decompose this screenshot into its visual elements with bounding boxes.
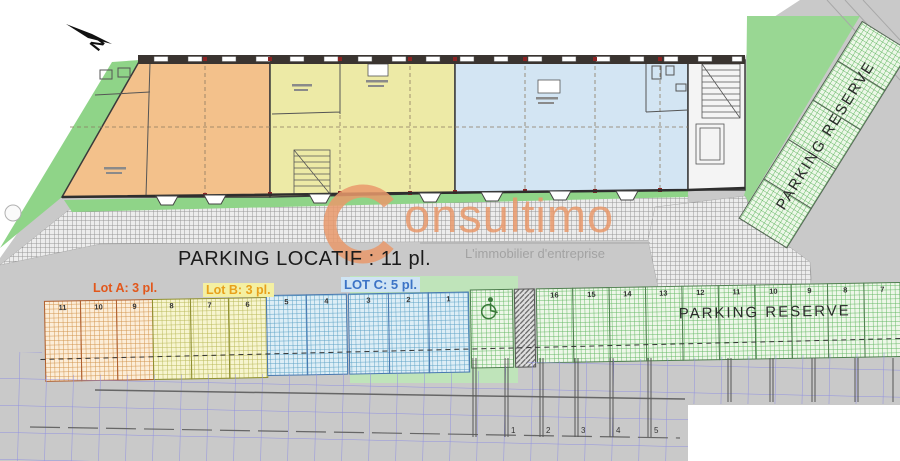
road-number: 2 — [546, 426, 551, 435]
space-number: 2 — [406, 295, 410, 304]
lot-c-spaces: 5 4 3 2 1 — [266, 292, 469, 376]
parking-space — [80, 300, 117, 381]
lot-b-label: Lot B: 3 pl. — [203, 283, 274, 297]
road-number: 5 — [654, 426, 659, 435]
road-number: 1 — [511, 426, 516, 435]
space-number: 9 — [132, 302, 136, 311]
space-number: 8 — [843, 285, 847, 294]
space-number: 14 — [623, 289, 632, 298]
space-number: 8 — [169, 301, 173, 310]
shrub-symbol — [5, 205, 21, 221]
parking-space — [228, 298, 267, 379]
parking-space — [306, 294, 347, 375]
space-number: 10 — [94, 302, 102, 311]
lot-c-label: LOT C: 5 pl. — [341, 277, 420, 292]
parking-space — [116, 300, 153, 381]
space-number: 11 — [59, 303, 67, 312]
space-number: 12 — [696, 288, 704, 297]
space-number: 7 — [207, 301, 211, 310]
lot-a-spaces: 11 10 9 — [44, 300, 153, 382]
parking-space — [190, 298, 229, 379]
parking-space — [152, 299, 191, 380]
building-stairwell-block — [688, 60, 745, 190]
hatched-walkway — [514, 289, 535, 367]
building — [62, 55, 745, 205]
space-number: 7 — [880, 285, 884, 294]
parking-space — [348, 293, 389, 374]
parking-space — [428, 292, 469, 373]
space-number: 1 — [446, 294, 450, 303]
watermark-tagline: L'immobilier d'entreprise — [420, 242, 650, 261]
watermark-name: onsultimo — [404, 192, 614, 239]
parking-locatif-title: PARKING LOCATIF : 11 pl. — [178, 248, 431, 271]
site-plan: PARKING RESERVE 11 10 9 8 7 6 5 — [0, 0, 900, 461]
space-number: 10 — [769, 287, 777, 296]
page-blank-bottom-right — [688, 405, 900, 461]
parking-space — [266, 295, 307, 376]
lot-a-label: Lot A: 3 pl. — [93, 281, 157, 295]
building-lot-b-area — [270, 60, 455, 197]
reserve-row-spaces: 16 15 14 13 12 11 10 9 8 7 PARKING RESER… — [536, 282, 900, 362]
building-lot-c-area — [455, 60, 688, 193]
space-number: 15 — [587, 290, 595, 299]
parking-reserve-row-label: PARKING RESERVE — [679, 302, 851, 322]
road-number: 3 — [581, 426, 586, 435]
space-number: 9 — [807, 286, 811, 295]
road-number: 4 — [616, 426, 621, 435]
parking-space — [388, 293, 429, 374]
lot-b-spaces: 8 7 6 — [152, 298, 267, 380]
parking-space — [44, 301, 81, 382]
handicap-space — [470, 289, 513, 368]
space-number: 16 — [550, 290, 558, 299]
space-number: 3 — [366, 296, 370, 305]
space-number: 5 — [284, 297, 288, 306]
space-number: 13 — [659, 289, 667, 298]
space-number: 6 — [245, 300, 249, 309]
space-number: 11 — [732, 287, 740, 296]
